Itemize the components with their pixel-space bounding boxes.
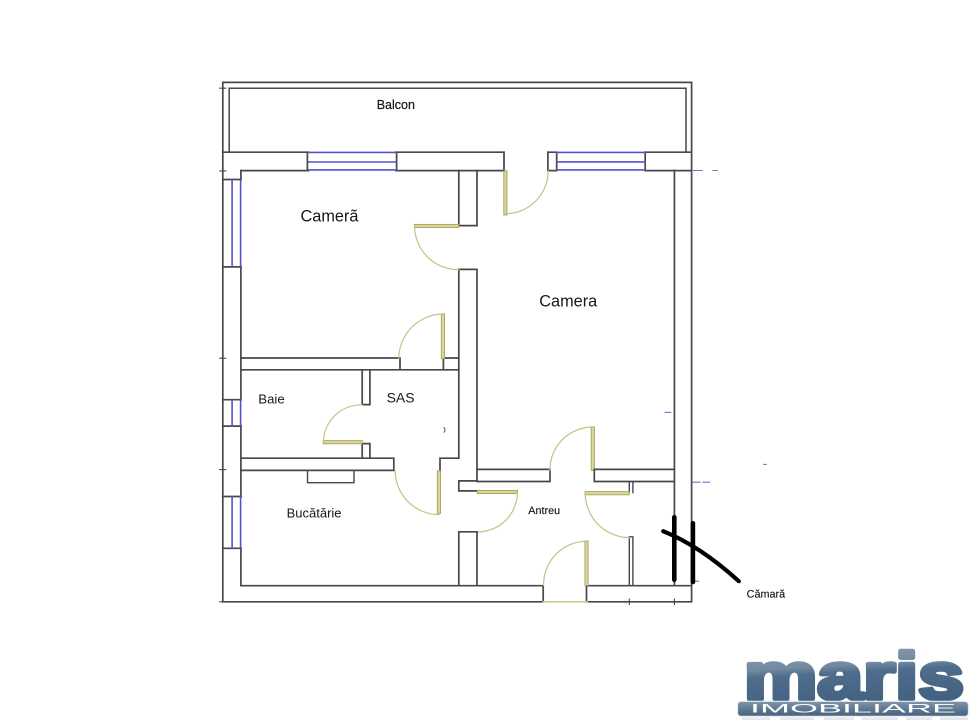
svg-text:Balcon: Balcon xyxy=(377,98,415,112)
svg-text:SAS: SAS xyxy=(387,390,415,406)
svg-text:IMOBILIARE: IMOBILIARE xyxy=(750,704,957,716)
svg-text:Bucătărie: Bucătărie xyxy=(287,506,342,521)
svg-text:Camerã: Camerã xyxy=(301,208,360,226)
svg-text:Antreu: Antreu xyxy=(528,505,560,517)
svg-text:Cămară: Cămară xyxy=(747,589,785,601)
svg-text:Baie: Baie xyxy=(258,392,284,407)
svg-text:Camera: Camera xyxy=(539,293,598,311)
